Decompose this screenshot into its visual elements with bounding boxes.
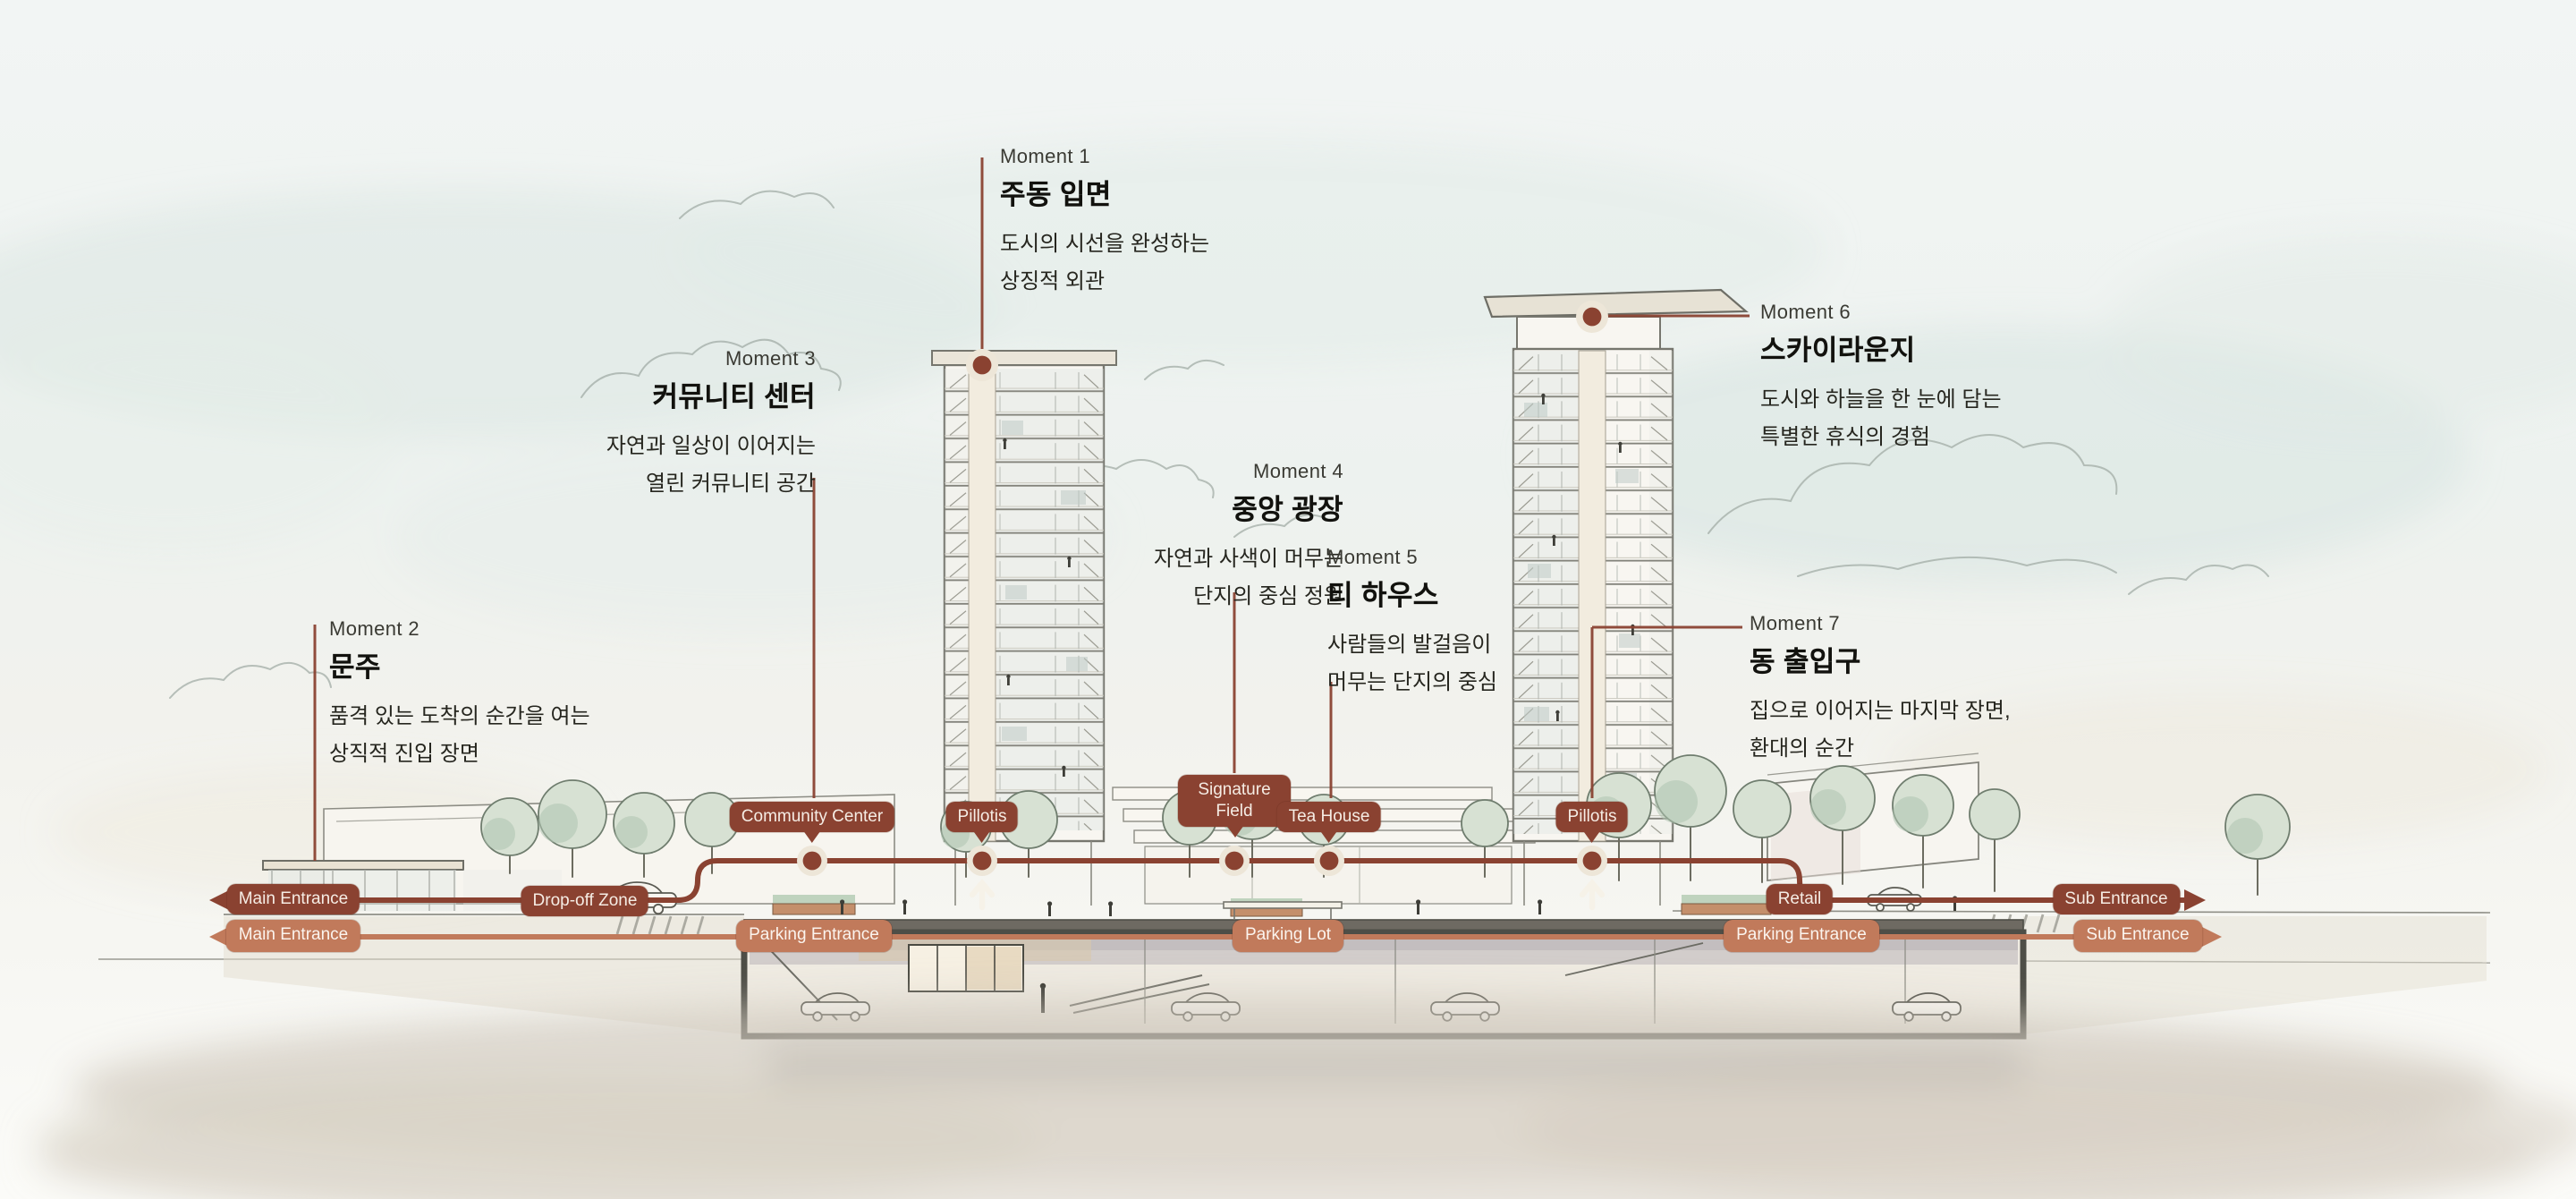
moment-4-title: 중앙 광장 [1154,494,1343,529]
moment-1-dot [966,349,998,381]
badge-main-entrance-lower: Main Entrance [226,920,361,952]
badge-sub-entrance-lower: Sub Entrance [2073,920,2201,952]
moment-2-annotation: Moment 2 문주 품격 있는 도착의 순간을 여는상직적 진입 장면 [329,619,590,773]
badge-parking-lot: Parking Lot [1233,920,1343,952]
moment-3-title: 커뮤니티 센터 [606,381,816,416]
moment-1-title: 주동 입면 [1000,179,1209,214]
moment-5-annotation: Moment 5 티 하우스 사람들의 발걸음이머무는 단지의 중심 [1327,548,1497,702]
badge-pillotis-left: Pillotis [946,802,1019,832]
moment-5-title: 티 하우스 [1327,580,1497,615]
moment-3-annotation: Moment 3 커뮤니티 센터 자연과 일상이 이어지는열린 커뮤니티 공간 [606,349,816,503]
badge-signature-field: Signature Field [1178,775,1291,827]
moment-2-desc: 품격 있는 도착의 순간을 여는상직적 진입 장면 [329,698,590,773]
route-arrow-right-lower [2200,926,2222,948]
pillotis-right-dot [1577,846,1607,876]
moment-5-label: Moment 5 [1327,548,1497,573]
moment-7-title: 동 출입구 [1750,646,2011,681]
moment-4-desc: 자연과 사색이 머무는단지의 중심 정원 [1154,540,1343,616]
moment-2-title: 문주 [329,651,590,686]
community-center-dot [797,846,827,876]
moment-7-label: Moment 7 [1750,614,2011,639]
moment-3-desc: 자연과 일상이 이어지는열린 커뮤니티 공간 [606,428,816,503]
signature-field-dot [1219,846,1250,876]
moment-1-desc: 도시의 시선을 완성하는상징적 외관 [1000,225,1209,301]
moment-route-line [209,861,2206,911]
tea-house-dot [1314,846,1344,876]
pilotis-up-arrows [972,883,1602,907]
pillotis-left-dot [967,846,997,876]
moment-1-annotation: Moment 1 주동 입면 도시의 시선을 완성하는상징적 외관 [1000,147,1209,301]
badge-community-center: Community Center [730,802,894,832]
badge-parking-entrance-left: Parking Entrance [736,920,892,952]
badge-parking-entrance-right: Parking Entrance [1724,920,1879,952]
moment-6-annotation: Moment 6 스카이라운지 도시와 하늘을 한 눈에 담는특별한 휴식의 경… [1760,302,2002,456]
moment-6-dot [1576,301,1608,333]
badge-pillotis-right: Pillotis [1556,802,1629,832]
moment-1-label: Moment 1 [1000,147,1209,172]
moment-7-leader [1592,627,1742,798]
moment-4-label: Moment 4 [1154,462,1343,487]
badge-sub-entrance-upper: Sub Entrance [2053,884,2179,914]
section-diagram-stage: Moment 1 주동 입면 도시의 시선을 완성하는상징적 외관 Moment… [0,0,2576,1199]
moment-6-label: Moment 6 [1760,302,2002,327]
badge-tea-house: Tea House [1277,802,1382,832]
route-arrow-right-upper [2184,889,2206,911]
badge-dropoff-zone: Drop-off Zone [521,886,649,916]
moment-6-desc: 도시와 하늘을 한 눈에 담는특별한 휴식의 경험 [1760,381,2002,456]
moment-2-label: Moment 2 [329,619,590,644]
moment-5-desc: 사람들의 발걸음이머무는 단지의 중심 [1327,626,1497,702]
moment-7-annotation: Moment 7 동 출입구 집으로 이어지는 마지막 장면,환대의 순간 [1750,614,2011,768]
moment-3-label: Moment 3 [606,349,816,374]
entrance-route-line [209,926,2222,948]
moment-4-annotation: Moment 4 중앙 광장 자연과 사색이 머무는단지의 중심 정원 [1154,462,1343,616]
badge-main-entrance-upper: Main Entrance [227,884,360,914]
moment-7-desc: 집으로 이어지는 마지막 장면,환대의 순간 [1750,693,2011,768]
moment-6-title: 스카이라운지 [1760,335,2002,370]
badge-retail: Retail [1767,884,1834,914]
